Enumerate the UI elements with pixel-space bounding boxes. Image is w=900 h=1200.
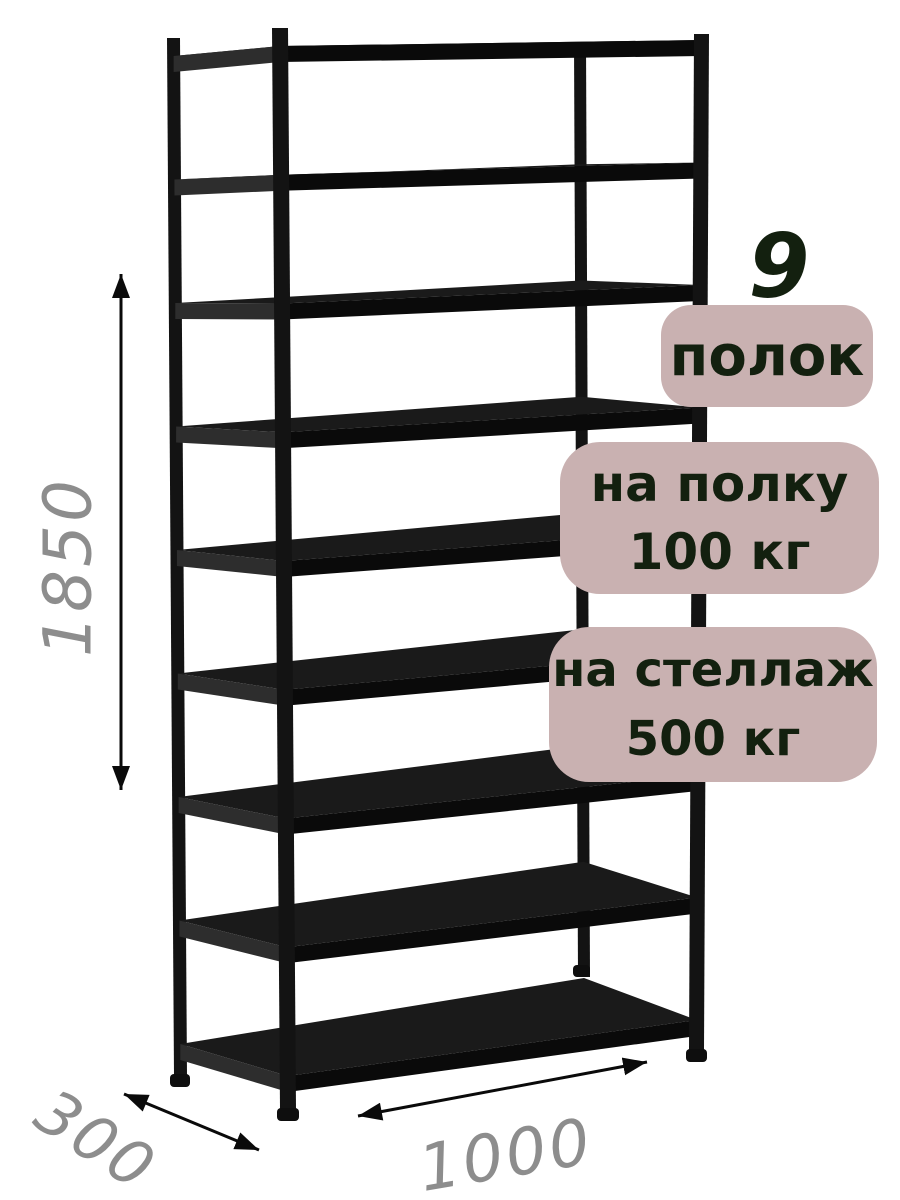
shelf-count-number: 9	[748, 215, 809, 318]
shelf-front-edge	[280, 40, 701, 62]
shelf-count-label: полок	[670, 324, 865, 389]
shelf-load-line1: на полку	[591, 450, 849, 518]
back-right-foot	[573, 965, 590, 977]
shelf-left-edge	[174, 46, 281, 72]
shelf-4	[176, 397, 700, 449]
shelf-count-badge: полок	[661, 305, 873, 407]
shelf-front-edge	[281, 163, 701, 191]
shelf-load-line2: 100 кг	[629, 518, 811, 586]
shelf-2	[174, 163, 700, 196]
shelf-left-edge	[175, 303, 282, 320]
shelf-8	[179, 862, 697, 964]
rack-load-line1: на стеллаж	[552, 636, 874, 704]
shelf-3	[175, 281, 700, 320]
back-left-foot	[170, 1074, 190, 1087]
shelf-1	[174, 40, 702, 72]
height-dimension-label: 1850	[30, 477, 107, 657]
rack-load-line2: 500 кг	[626, 705, 801, 773]
shelving-rack-drawing	[0, 0, 900, 1200]
shelf-9	[180, 978, 696, 1092]
front-left-foot	[277, 1108, 299, 1121]
front-right-foot	[686, 1049, 707, 1062]
shelf-load-badge: на полку 100 кг	[560, 442, 879, 594]
rack-load-badge: на стеллаж 500 кг	[549, 627, 877, 782]
product-image-canvas: 1850 300 1000 9 полок на полку 100 кг на…	[0, 0, 900, 1200]
shelf-left-edge	[174, 175, 281, 196]
